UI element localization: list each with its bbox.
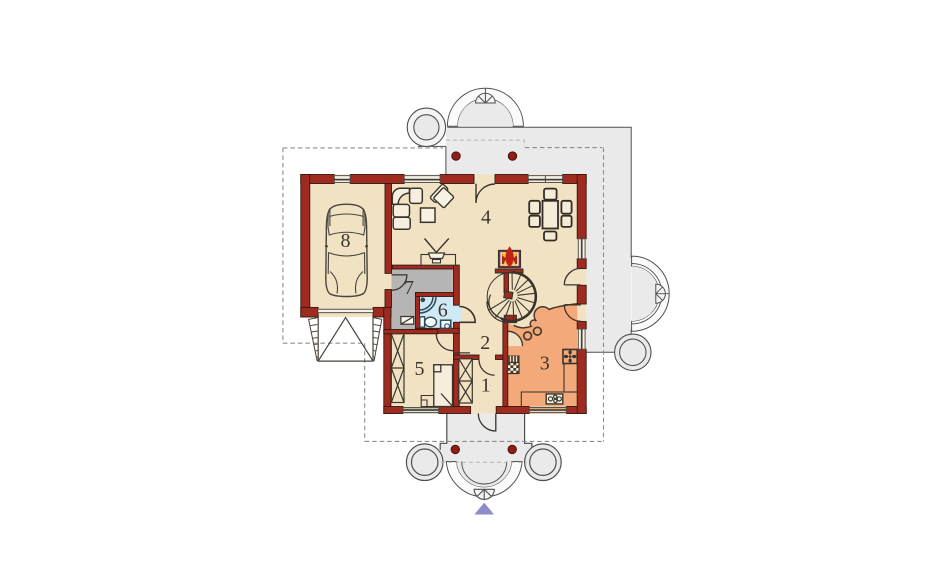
svg-text:3: 3 (540, 352, 550, 374)
svg-text:7: 7 (404, 277, 414, 299)
svg-text:1: 1 (481, 374, 491, 396)
svg-text:5: 5 (415, 358, 425, 380)
svg-text:4: 4 (481, 207, 491, 229)
svg-text:2: 2 (480, 332, 490, 354)
svg-text:8: 8 (341, 230, 351, 252)
svg-text:6: 6 (438, 300, 448, 322)
